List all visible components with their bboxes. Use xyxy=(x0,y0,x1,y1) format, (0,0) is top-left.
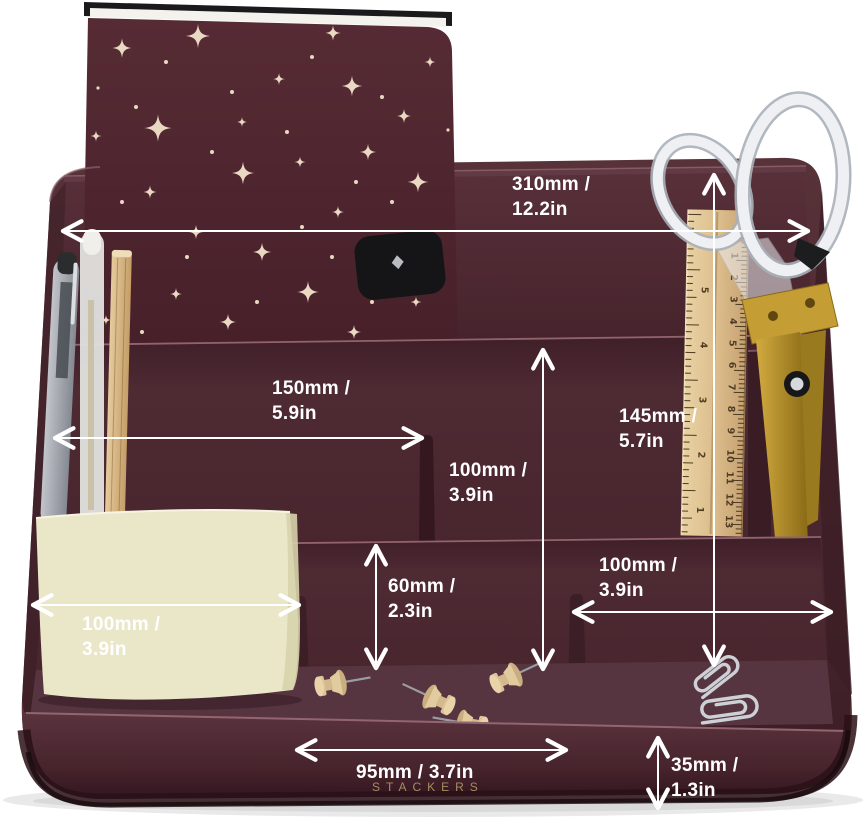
dimension-label-100mm-middle: 100mm / 3.9in xyxy=(449,458,527,508)
dimension-text: 35mm / xyxy=(671,753,738,778)
dimension-label-100mm-left: 100mm / 3.9in xyxy=(82,612,160,662)
svg-text:9: 9 xyxy=(725,427,736,434)
brand-logo: STACKERS xyxy=(372,780,484,794)
notebook xyxy=(82,2,458,347)
middle-divider xyxy=(419,435,435,546)
dimension-text: 150mm / xyxy=(272,376,350,401)
svg-text:12: 12 xyxy=(723,493,734,506)
notebook-clasp xyxy=(353,229,447,302)
svg-text:4: 4 xyxy=(697,342,708,349)
clear-pen xyxy=(80,229,104,532)
dimension-text: 100mm / xyxy=(449,458,527,483)
dimension-text: 3.9in xyxy=(82,637,160,662)
svg-text:11: 11 xyxy=(724,471,735,484)
svg-text:6: 6 xyxy=(726,362,737,369)
dimension-label-60mm: 60mm / 2.3in xyxy=(388,574,455,624)
dimension-label-35mm: 35mm / 1.3in xyxy=(671,753,738,803)
svg-text:5: 5 xyxy=(727,340,738,347)
notebook-cover xyxy=(82,18,458,347)
dimension-text: 1.3in xyxy=(671,778,738,803)
dimension-text: 100mm / xyxy=(82,612,160,637)
product-photo: 1234567891011121354321 xyxy=(0,0,867,821)
dimension-text: 310mm / xyxy=(512,172,590,197)
svg-text:3: 3 xyxy=(696,397,707,404)
dimension-text: 2.3in xyxy=(388,599,455,624)
svg-text:5: 5 xyxy=(699,287,710,294)
dimension-text: 12.2in xyxy=(512,197,590,222)
svg-text:8: 8 xyxy=(725,406,736,413)
dimension-label-100mm-right: 100mm / 3.9in xyxy=(599,553,677,603)
dimension-text: 5.9in xyxy=(272,401,350,426)
svg-text:3: 3 xyxy=(727,296,738,303)
svg-text:7: 7 xyxy=(726,384,737,391)
dimension-label-145mm: 145mm / 5.7in xyxy=(619,404,697,454)
svg-text:1: 1 xyxy=(694,507,705,514)
dimension-text: 3.9in xyxy=(449,483,527,508)
dimension-text: 3.9in xyxy=(599,578,677,603)
scene-drawing: 1234567891011121354321 xyxy=(0,0,867,821)
sticky-notes xyxy=(36,510,302,710)
svg-text:10: 10 xyxy=(724,449,735,463)
dimension-label-150mm: 150mm / 5.9in xyxy=(272,376,350,426)
dimension-label-310mm: 310mm / 12.2in xyxy=(512,172,590,222)
dimension-text: 100mm / xyxy=(599,553,677,578)
dimension-text: 145mm / xyxy=(619,404,697,429)
svg-text:13: 13 xyxy=(723,515,734,528)
svg-text:4: 4 xyxy=(727,318,738,325)
dimension-text: 5.7in xyxy=(619,429,697,454)
dimension-text: 60mm / xyxy=(388,574,455,599)
